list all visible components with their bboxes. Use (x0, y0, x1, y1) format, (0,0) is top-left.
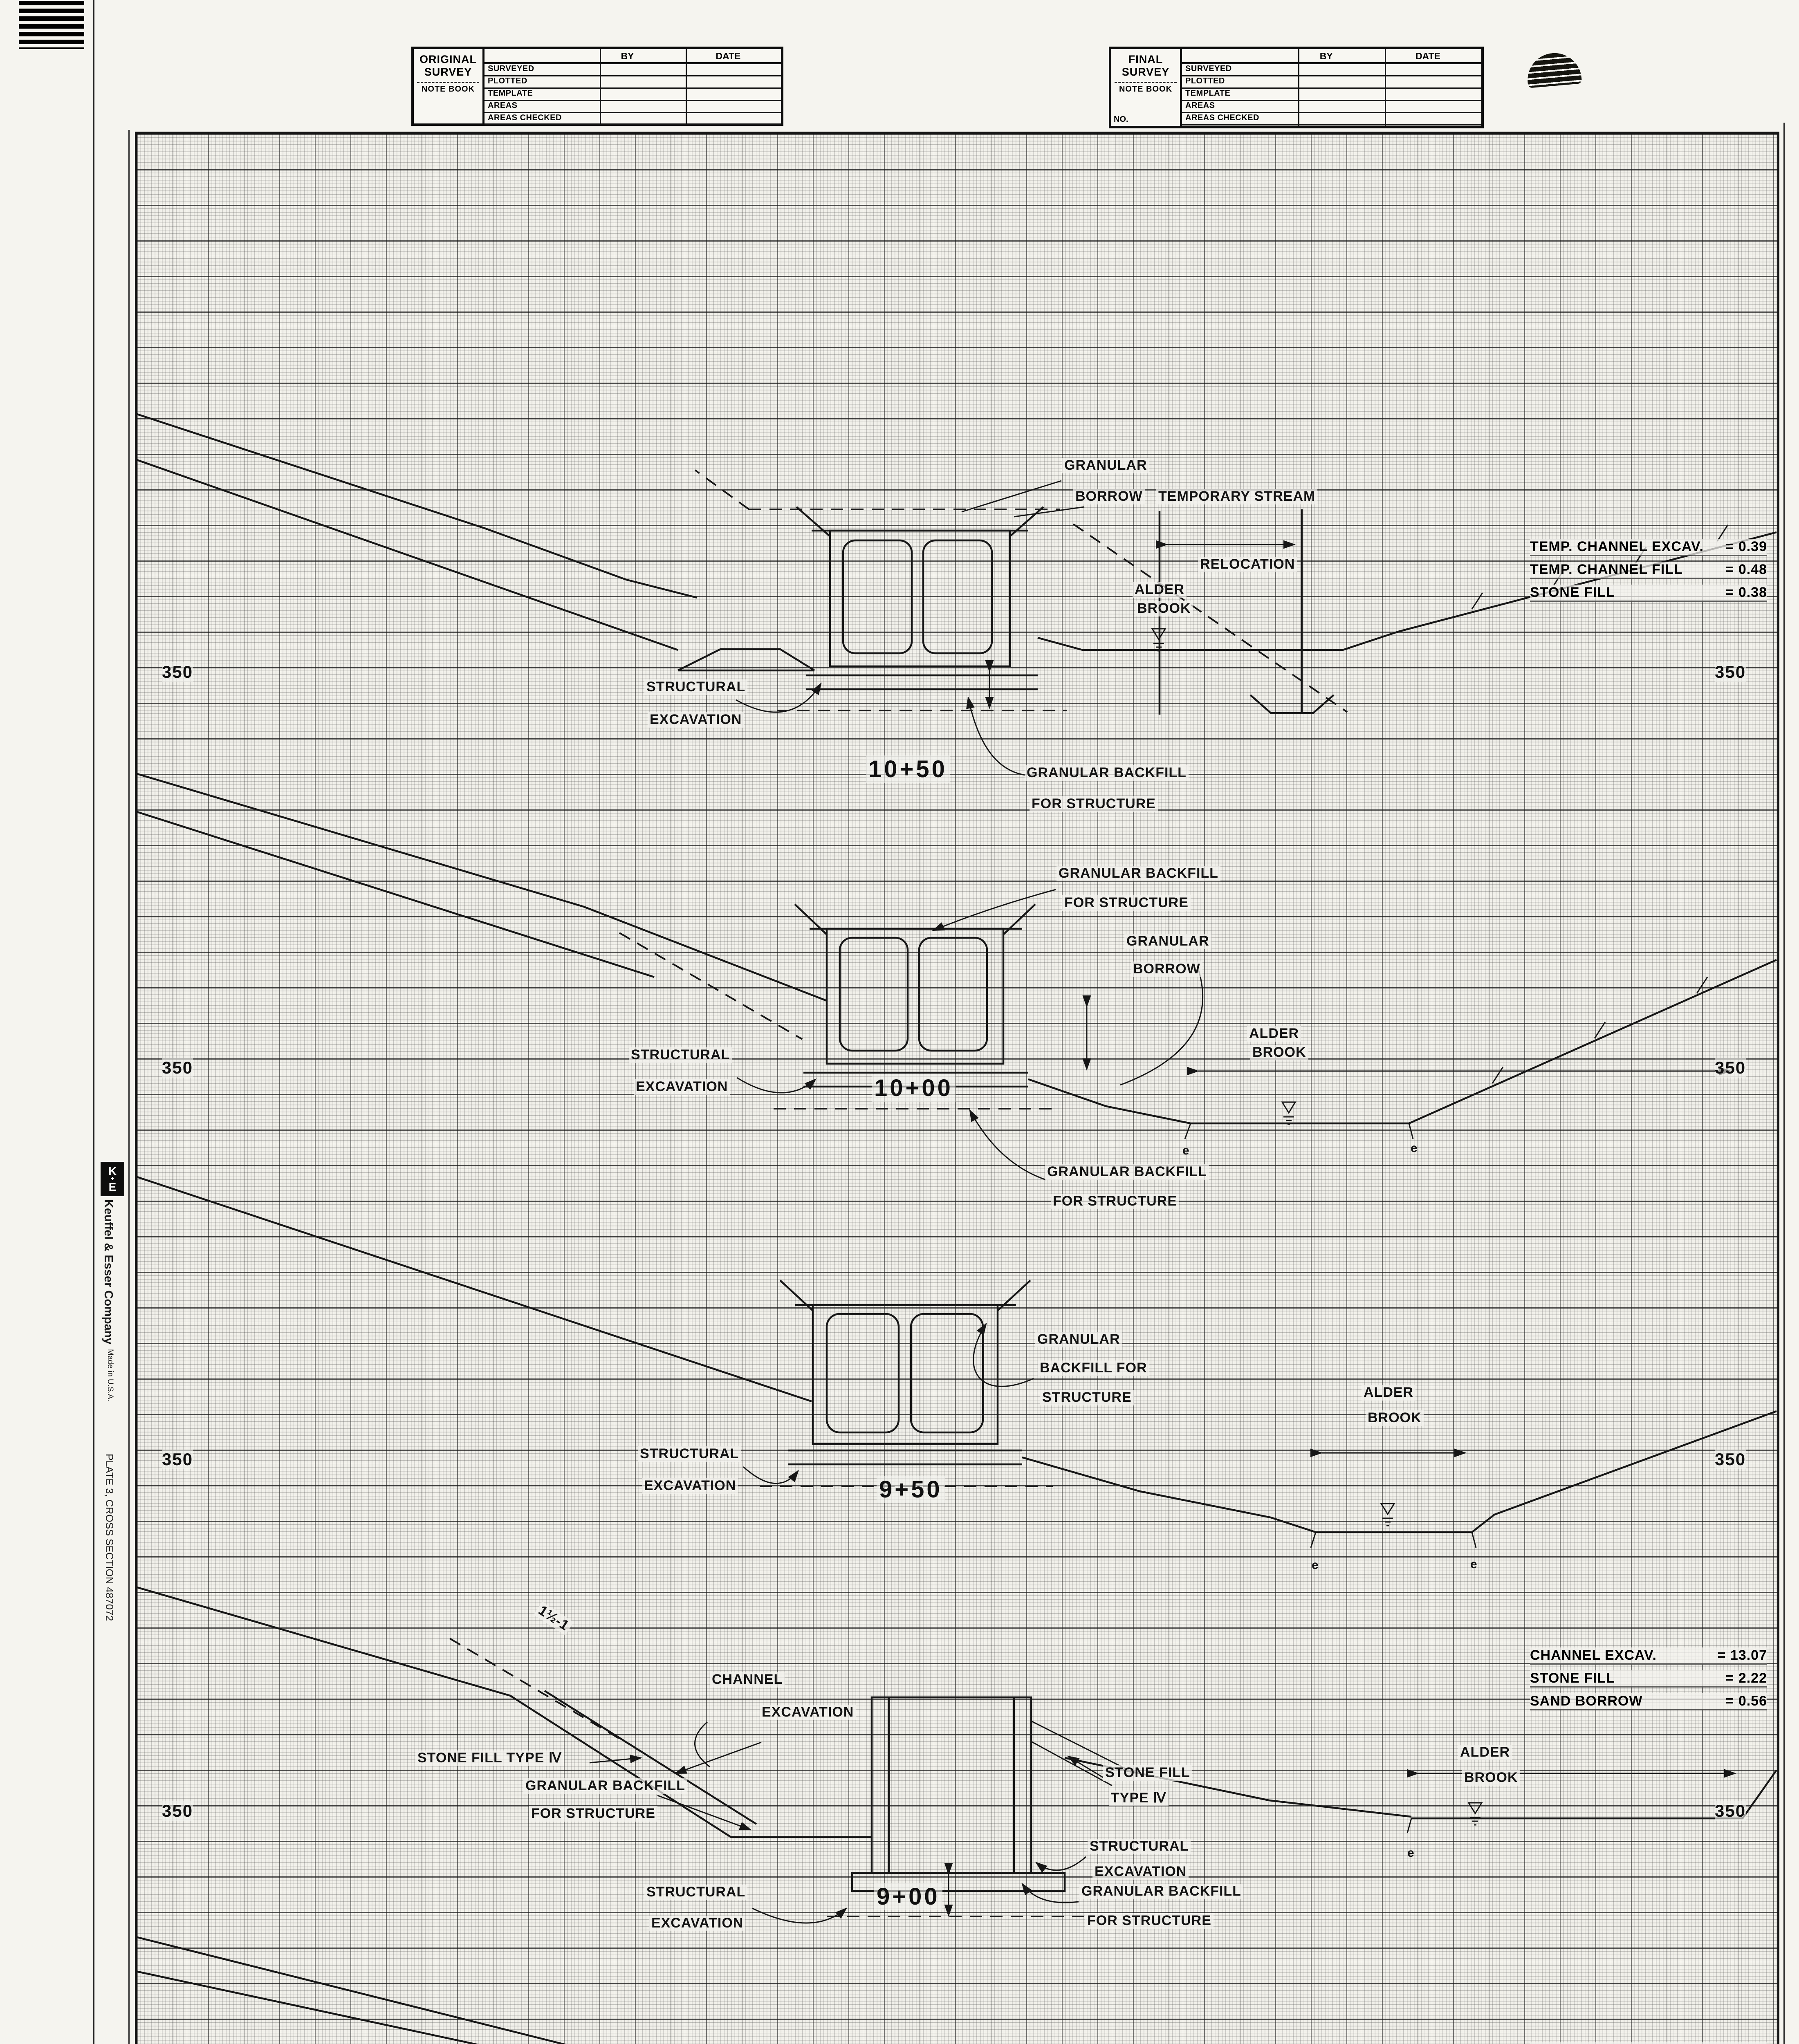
label-granular-backfill: GRANULAR BACKFILL (1079, 1884, 1243, 1899)
label-granular-backfill: FOR STRUCTURE (1051, 1194, 1179, 1209)
label-channel-excavation: EXCAVATION (760, 1705, 856, 1720)
label-granular-backfill: GRANULAR (1035, 1332, 1122, 1347)
label-structural-excavation: STRUCTURAL (629, 1047, 732, 1063)
label-structural-excavation: STRUCTURAL (644, 1885, 747, 1900)
table-row: AREAS CHECKED (1182, 113, 1481, 126)
label-alder-brook: ALDER (1458, 1745, 1512, 1760)
quantity-table: CHANNEL EXCAV.= 13.07 STONE FILL= 2.22 S… (1530, 1647, 1767, 1716)
grid-outer-border (1783, 123, 1785, 2044)
qty-name: TEMP. CHANNEL EXCAV. (1530, 539, 1704, 555)
label-alder-brook: ALDER (1362, 1385, 1415, 1401)
table-title: ORIGINAL (419, 53, 477, 66)
elevation-label: 350 (162, 1450, 193, 1469)
label-granular-borrow: BORROW (1073, 489, 1145, 504)
table-row: TEMPLATE (485, 89, 781, 101)
label-structural-excavation: STRUCTURAL (644, 679, 747, 695)
label-granular-borrow: GRANULAR (1062, 458, 1149, 473)
paper-edge-line (93, 0, 94, 2044)
elevation-label: 350 (162, 1801, 193, 1821)
qty-value: = 13.07 (1718, 1647, 1767, 1663)
elevation-label: 350 (1715, 1801, 1746, 1821)
qty-name: SAND BORROW (1530, 1693, 1642, 1709)
label-granular-borrow: GRANULAR (1124, 934, 1211, 949)
col-by: BY (1320, 51, 1333, 62)
label-structural-excavation: EXCAVATION (648, 712, 744, 728)
quantity-table: CHANNEL EXCAV.= 12.28 STONE FILL= 1.44 S… (1530, 2042, 1767, 2044)
station-label: 10+00 (872, 1074, 956, 1102)
label-relocation: RELOCATION (1198, 557, 1297, 572)
label-alder-brook: BROOK (1250, 1045, 1308, 1060)
label-alder-brook: BROOK (1135, 601, 1193, 616)
edge-mark: e (1407, 1846, 1414, 1860)
qty-value: = 0.38 (1726, 585, 1767, 601)
elevation-label: 350 (1715, 1058, 1746, 1078)
label-granular-backfill: GRANULAR BACKFILL (1057, 866, 1220, 881)
graph-paper-grid (135, 132, 1779, 2044)
ke-logo-icon: K + E (101, 1162, 124, 1196)
edge-mark: e (1411, 1141, 1418, 1155)
grid-inner-border (128, 130, 130, 2044)
table-row: SURVEYED (1182, 64, 1481, 76)
made-in-label: Made in U.S.A. (105, 1349, 114, 1401)
label-granular-backfill: FOR STRUCTURE (1030, 796, 1158, 812)
label-structural-excavation: EXCAVATION (642, 1478, 738, 1494)
logo-letter: E (109, 1182, 117, 1192)
station-label: 9+00 (874, 1883, 942, 1910)
qty-name: STONE FILL (1530, 1670, 1615, 1686)
label-alder-brook: BROOK (1462, 1770, 1520, 1786)
label-granular-borrow: BORROW (1131, 961, 1202, 977)
registration-marks (19, 1, 84, 49)
table-row: AREAS CHECKED (485, 113, 781, 126)
paper-brand: Keuffel & Esser Company (101, 1199, 115, 1345)
elevation-label: 350 (1715, 1450, 1746, 1469)
edge-mark: e (1470, 1558, 1477, 1571)
label-granular-backfill: FOR STRUCTURE (1085, 1913, 1214, 1929)
label-structural-excavation: STRUCTURAL (638, 1446, 741, 1462)
table-title: FINAL (1122, 53, 1170, 66)
qty-name: CHANNEL EXCAV. (1530, 1647, 1657, 1663)
label-granular-backfill: GRANULAR BACKFILL (1025, 765, 1189, 781)
label-temporary-stream: TEMPORARY STREAM (1156, 489, 1317, 504)
table-row: PLOTTED (1182, 76, 1481, 89)
note-book-label: NOTE BOOK (422, 85, 475, 94)
quantity-table: TEMP. CHANNEL EXCAV.= 0.39 TEMP. CHANNEL… (1530, 539, 1767, 607)
edge-mark: e (1182, 1144, 1189, 1158)
qty-value: = 0.56 (1726, 1693, 1767, 1709)
elevation-label: 350 (162, 1058, 193, 1078)
qty-name: STONE FILL (1530, 585, 1615, 601)
label-stone-fill: TYPE Ⅳ (1109, 1791, 1169, 1806)
table-row: SURVEYED (485, 64, 781, 76)
label-structural-excavation: EXCAVATION (634, 1079, 730, 1095)
label-stone-fill: STONE FILL (1103, 1765, 1192, 1781)
note-book-label: NOTE BOOK (1119, 85, 1172, 94)
ke-stamp-icon (1525, 51, 1582, 88)
edge-mark: e (1312, 1558, 1319, 1572)
table-row: AREAS (1182, 101, 1481, 113)
col-date: DATE (1415, 51, 1440, 62)
qty-name: CHANNEL EXCAV. (1530, 2042, 1657, 2044)
label-alder-brook: ALDER (1133, 582, 1187, 598)
label-structural-excavation: STRUCTURAL (1088, 1839, 1191, 1854)
label-granular-backfill: STRUCTURE (1040, 1390, 1134, 1405)
label-structural-excavation: EXCAVATION (1092, 1864, 1189, 1880)
qty-value: = 0.39 (1726, 539, 1767, 555)
label-granular-backfill: FOR STRUCTURE (1062, 895, 1191, 911)
label-granular-backfill: GRANULAR BACKFILL (523, 1778, 687, 1794)
label-structural-excavation: EXCAVATION (649, 1916, 745, 1931)
qty-value: = 0.48 (1726, 562, 1767, 578)
drawing-sheet: ORIGINAL SURVEY NOTE BOOK BY DATE SURVEY… (0, 0, 1799, 2044)
no-label: NO. (1111, 115, 1128, 126)
label-granular-backfill: GRANULAR BACKFILL (1045, 1164, 1209, 1180)
logo-letter: K (108, 1166, 117, 1176)
elevation-label: 350 (162, 662, 193, 682)
elevation-label: 350 (1715, 662, 1746, 682)
qty-value: = 12.28 (1718, 2042, 1767, 2044)
final-survey-header: FINAL SURVEY NOTE BOOK NO. (1111, 49, 1182, 126)
col-by: BY (621, 51, 634, 62)
final-survey-table: FINAL SURVEY NOTE BOOK NO. BY DATE SURVE… (1109, 47, 1484, 128)
original-survey-table: ORIGINAL SURVEY NOTE BOOK BY DATE SURVEY… (411, 47, 783, 126)
plate-number: PLATE 3, CROSS SECTION 487072 (103, 1454, 115, 1621)
qty-name: TEMP. CHANNEL FILL (1530, 562, 1683, 578)
station-label: 10+50 (866, 755, 950, 783)
label-granular-backfill: FOR STRUCTURE (529, 1806, 657, 1822)
qty-value: = 2.22 (1726, 1670, 1767, 1686)
col-date: DATE (716, 51, 741, 62)
label-stone-fill: STONE FILL TYPE Ⅳ (415, 1750, 564, 1766)
label-alder-brook: BROOK (1366, 1410, 1424, 1426)
table-row: PLOTTED (485, 76, 781, 89)
station-label: 9+50 (877, 1476, 945, 1503)
label-alder-brook: ALDER (1247, 1026, 1301, 1042)
table-row: AREAS (485, 101, 781, 113)
label-channel-excavation: CHANNEL (710, 1672, 785, 1688)
table-row: TEMPLATE (1182, 89, 1481, 101)
label-granular-backfill: BACKFILL FOR (1038, 1360, 1149, 1376)
original-survey-header: ORIGINAL SURVEY NOTE BOOK (414, 49, 485, 123)
